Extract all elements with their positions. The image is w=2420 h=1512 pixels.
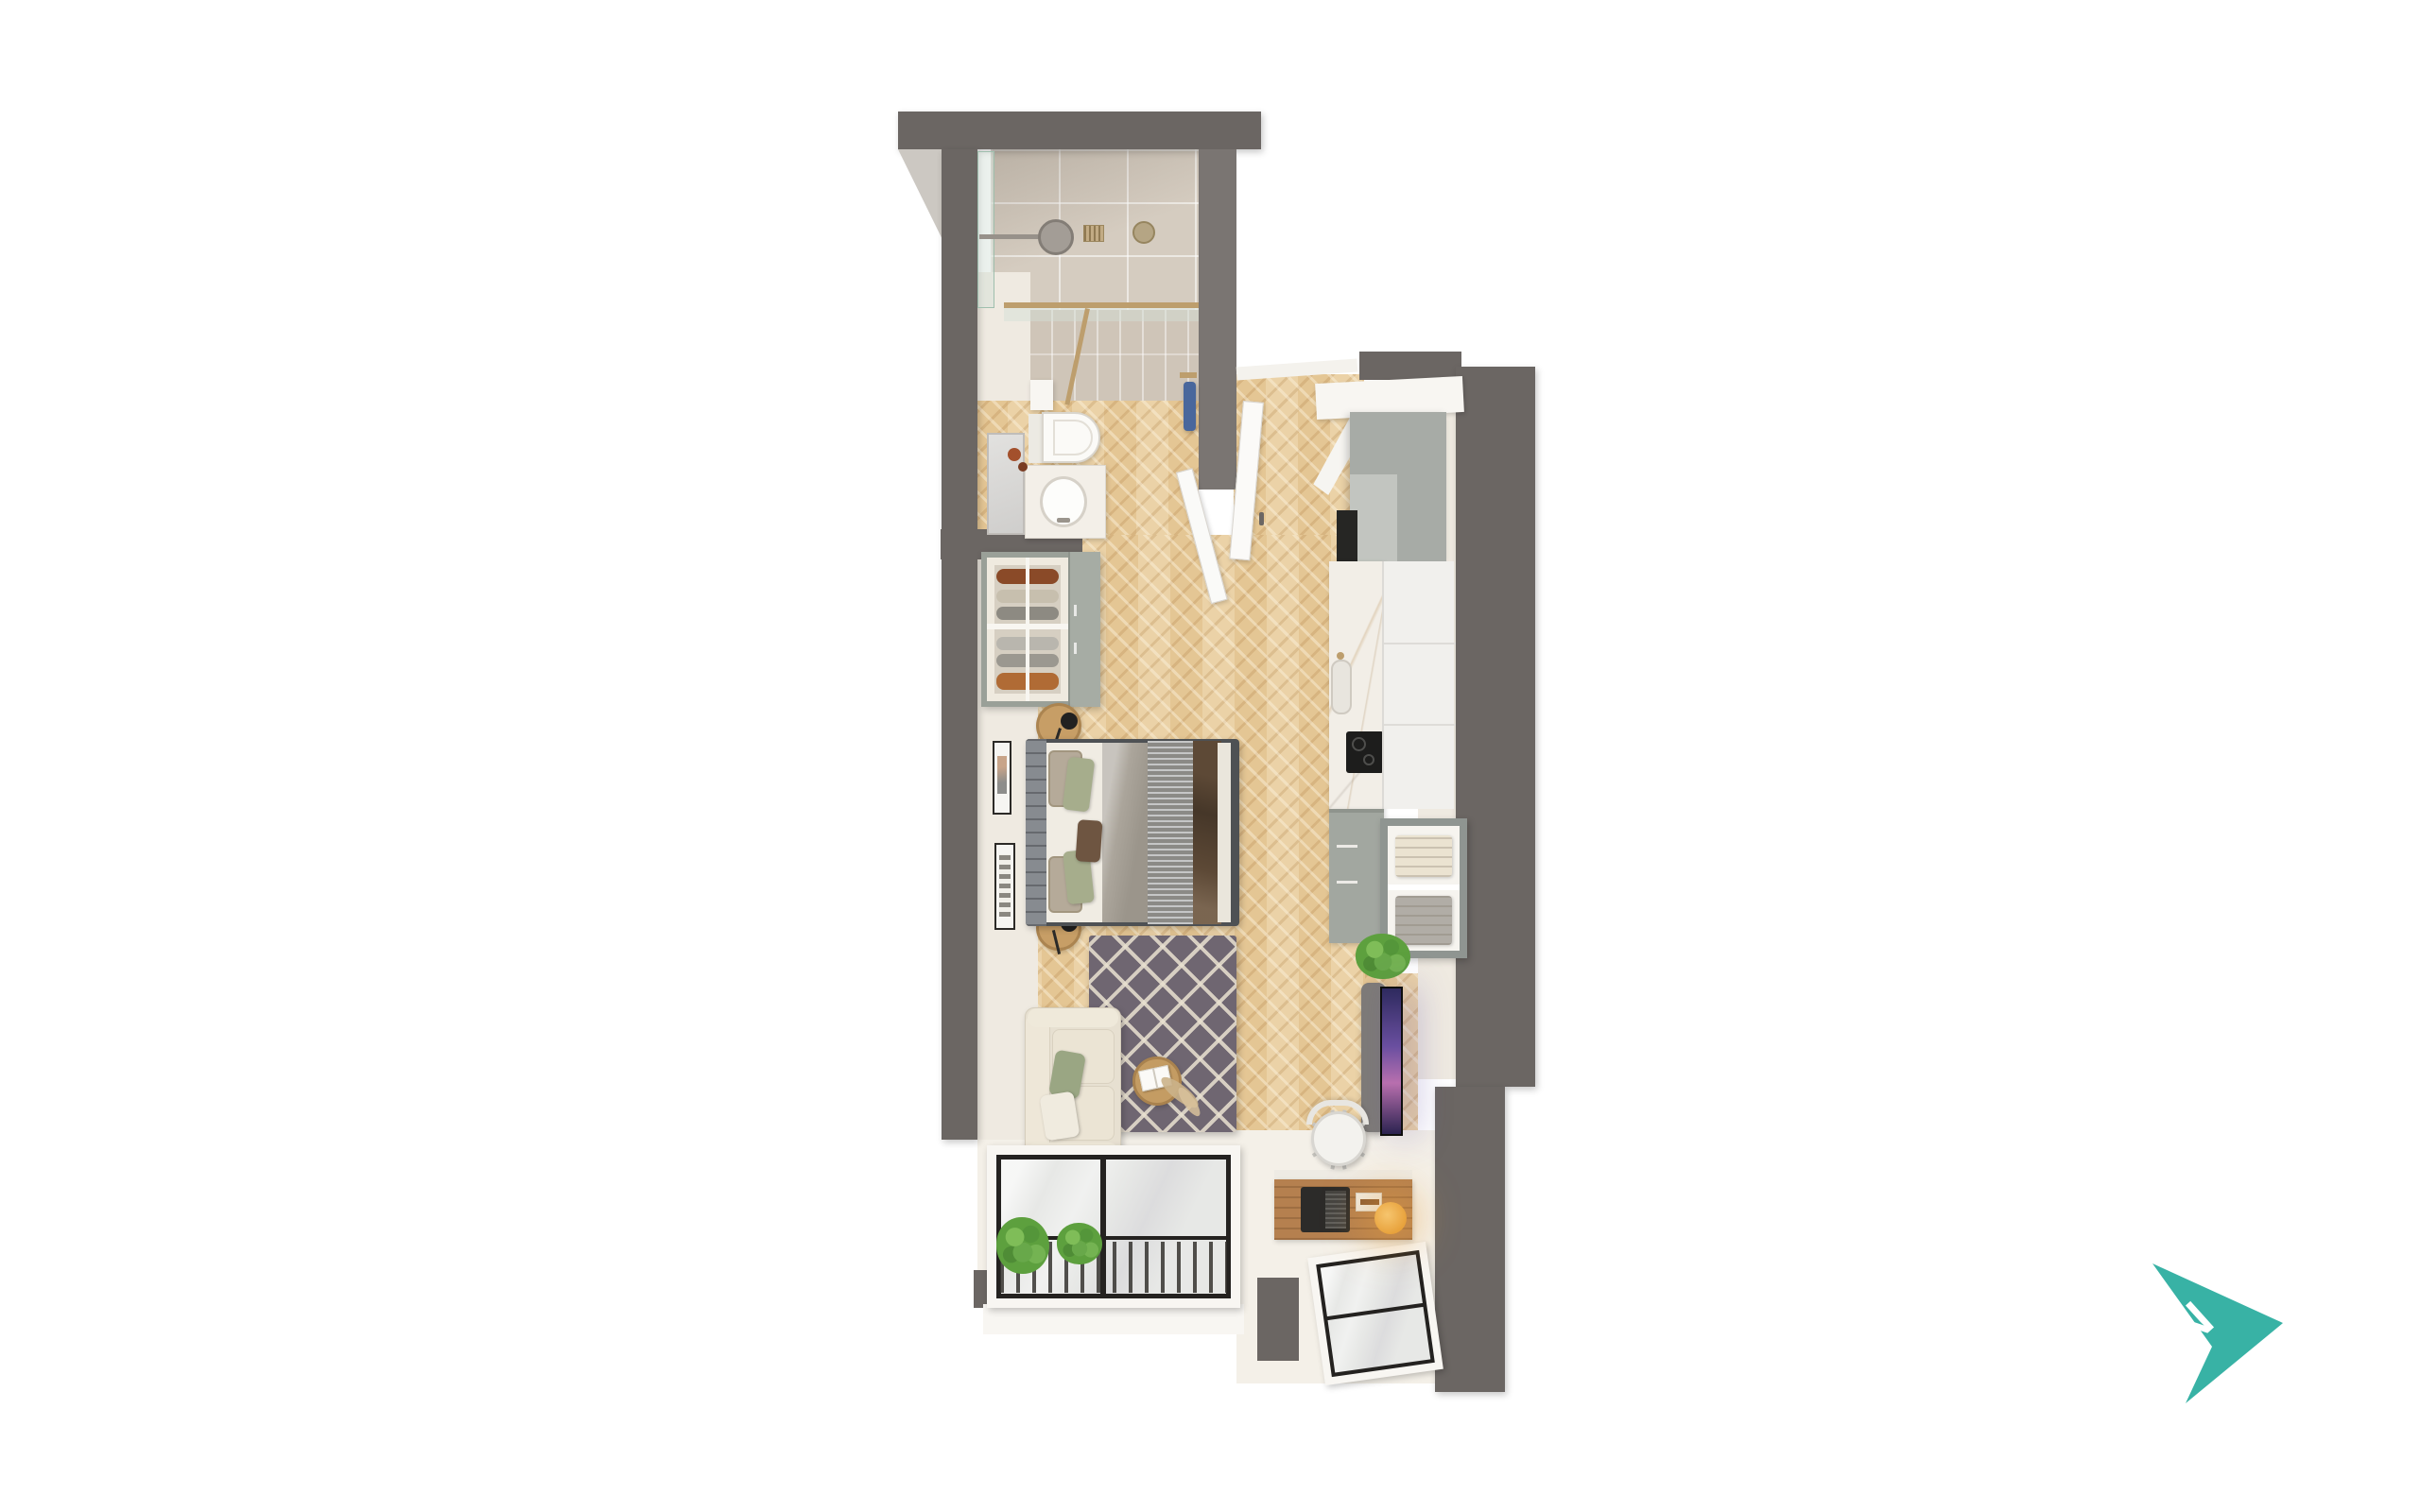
shower-screen-glass [1004, 308, 1199, 321]
shower-head-icon [1038, 219, 1074, 255]
hob-ring-2 [1363, 754, 1374, 765]
office-chair [1303, 1100, 1374, 1179]
table-lamp-top-icon [1061, 713, 1078, 730]
towel-hook-icon [1180, 372, 1197, 378]
wardrobe-door-panel [1068, 552, 1100, 707]
shower-drain-icon [1083, 225, 1104, 242]
toilet-paper-holder [1030, 380, 1053, 410]
sink-faucet-icon [1337, 652, 1344, 660]
hob-ring-1 [1352, 737, 1366, 751]
bed-foot-edge [1218, 743, 1231, 922]
shower-valve-icon [1132, 221, 1155, 244]
indoor-plant-1 [996, 1217, 1049, 1274]
sofa-pillow-white [1039, 1091, 1080, 1141]
wall-art-frame-1 [993, 741, 1011, 815]
kitchen-drawer-unit [1329, 809, 1384, 943]
window-sill-left [983, 1304, 1244, 1334]
laptop [1301, 1187, 1350, 1232]
wardrobe-interior [987, 558, 1068, 701]
wall-right [1456, 367, 1535, 1087]
toilet-tank [1028, 414, 1042, 463]
wall-window-stub [1257, 1278, 1299, 1361]
notebook-band [1360, 1199, 1379, 1205]
linen-shelf-divider [1388, 885, 1460, 890]
north-arrow-compass: N [2138, 1253, 2293, 1414]
shower-glass-left [977, 151, 994, 308]
corner-window [1307, 1242, 1443, 1385]
toiletry-bottle-amber [1008, 448, 1021, 461]
tv-screen [1380, 987, 1403, 1136]
bed-sheet-gray [1102, 743, 1148, 922]
folded-linen-cream [1395, 835, 1452, 877]
indoor-plant-2 [1057, 1223, 1102, 1264]
sofa [1025, 1007, 1121, 1160]
toiletry-bottle-dark [1018, 462, 1028, 472]
sofa-arm-top [1028, 1008, 1118, 1027]
bed-headboard [1026, 739, 1046, 926]
entry-door-handle-icon [1259, 512, 1264, 525]
vanity-faucet-icon [1057, 518, 1070, 523]
wall-top [898, 112, 1261, 149]
bed [1026, 739, 1239, 926]
wardrobe-handle-1 [1074, 605, 1077, 616]
shower-lower-tiles [1028, 310, 1199, 403]
floor-plan [0, 0, 2420, 1512]
drawer-handle-2 [1337, 881, 1357, 884]
shower-arm [979, 234, 1046, 239]
art-abstract-1 [997, 756, 1007, 794]
blue-towel [1184, 382, 1196, 431]
wall-right-lower [1435, 1087, 1505, 1392]
folded-linen-gray [1395, 896, 1452, 945]
drawer-handle-1 [1337, 845, 1357, 848]
shoe-wardrobe [981, 552, 1100, 707]
wardrobe-handle-2 [1074, 643, 1077, 654]
toilet-seat-line [1053, 420, 1093, 455]
chair-seat [1311, 1111, 1366, 1166]
bed-runner-striped [1148, 741, 1195, 924]
corner-window-glazing [1316, 1250, 1435, 1377]
art-abstract-2 [999, 854, 1011, 917]
wall-entry-top [1359, 352, 1461, 380]
wall-left [942, 149, 977, 1140]
kitchen-plant [1356, 934, 1410, 979]
pillow-brown-accent [1075, 819, 1102, 863]
induction-hob [1346, 731, 1384, 773]
wall-bathroom-right [1199, 149, 1236, 490]
wall-art-frame-2 [994, 843, 1015, 930]
kitchen-sink [1331, 660, 1352, 714]
tall-cabinet-seam-1 [1384, 643, 1456, 644]
shower-screen-frame [1004, 302, 1199, 308]
tall-cabinet-seam-2 [1384, 724, 1456, 726]
kitchen-tall-white [1382, 561, 1454, 809]
laptop-keyboard [1325, 1191, 1346, 1228]
vanity-mirror [987, 433, 1025, 535]
wardrobe-divider [1026, 558, 1029, 701]
desk-lamp-glowing [1374, 1202, 1407, 1234]
